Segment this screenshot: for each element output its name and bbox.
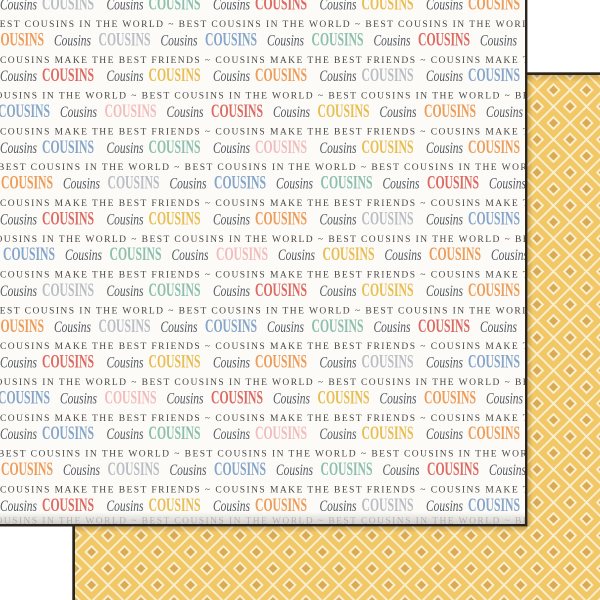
svg-text:Cousins: Cousins	[0, 0, 37, 14]
svg-text:Cousins: Cousins	[380, 104, 417, 121]
svg-text:Cousins: Cousins	[60, 104, 97, 121]
svg-text:COUSINS: COUSINS	[149, 208, 201, 229]
svg-text:BEST COUSINS IN THE WORLD ~ BE: BEST COUSINS IN THE WORLD ~ BEST COUSINS…	[0, 20, 574, 30]
svg-text:COUSINS: COUSINS	[0, 29, 44, 50]
svg-text:COUSINS: COUSINS	[99, 29, 151, 50]
svg-text:Cousins: Cousins	[480, 319, 517, 336]
svg-text:Cousins: Cousins	[107, 140, 144, 157]
svg-text:COUSINS: COUSINS	[255, 137, 307, 158]
svg-text:COUSINS MAKE THE BEST FRIENDS: COUSINS MAKE THE BEST FRIENDS ~ COUSINS …	[0, 414, 546, 424]
svg-text:Cousins: Cousins	[489, 462, 526, 479]
svg-text:COUSINS: COUSINS	[468, 352, 520, 373]
svg-text:COUSINS: COUSINS	[214, 459, 266, 480]
svg-text:Cousins: Cousins	[374, 32, 411, 49]
svg-text:BEST COUSINS IN THE WORLD ~ BE: BEST COUSINS IN THE WORLD ~ BEST COUSINS…	[0, 450, 580, 460]
svg-text:COUSINS: COUSINS	[149, 0, 201, 15]
svg-text:COUSINS MAKE THE BEST FRIENDS: COUSINS MAKE THE BEST FRIENDS ~ COUSINS …	[0, 342, 546, 352]
svg-text:COUSINS: COUSINS	[318, 101, 370, 122]
svg-text:Cousins: Cousins	[0, 355, 37, 372]
svg-text:COUSINS: COUSINS	[99, 316, 151, 337]
svg-text:Cousins: Cousins	[167, 390, 204, 407]
svg-text:Cousins: Cousins	[320, 426, 357, 443]
svg-text:COUSINS: COUSINS	[42, 352, 94, 373]
svg-text:BEST COUSINS IN THE WORLD ~ BE: BEST COUSINS IN THE WORLD ~ BEST COUSINS…	[0, 306, 574, 316]
svg-text:COUSINS: COUSINS	[362, 0, 414, 15]
svg-text:Cousins: Cousins	[426, 140, 463, 157]
svg-text:COUSINS: COUSINS	[149, 423, 201, 444]
svg-text:Cousins: Cousins	[213, 426, 250, 443]
svg-text:COUSINS: COUSINS	[211, 101, 263, 122]
svg-text:Cousins: Cousins	[426, 426, 463, 443]
svg-text:Cousins: Cousins	[380, 390, 417, 407]
svg-text:Cousins: Cousins	[491, 247, 528, 264]
svg-text:Cousins: Cousins	[278, 247, 315, 264]
svg-text:Cousins: Cousins	[426, 211, 463, 228]
svg-text:Cousins: Cousins	[213, 355, 250, 372]
svg-text:Cousins: Cousins	[426, 283, 463, 300]
svg-text:Cousins: Cousins	[426, 0, 463, 14]
svg-text:COUSINS: COUSINS	[211, 387, 263, 408]
svg-text:Cousins: Cousins	[0, 140, 37, 157]
svg-text:COUSINS: COUSINS	[42, 280, 94, 301]
svg-text:Cousins: Cousins	[63, 176, 100, 193]
svg-text:COUSINS: COUSINS	[42, 137, 94, 158]
svg-text:COUSINS: COUSINS	[1, 173, 53, 194]
svg-text:COUSINS: COUSINS	[318, 387, 370, 408]
svg-text:COUSINS: COUSINS	[205, 29, 257, 50]
svg-text:COUSINS: COUSINS	[42, 208, 94, 229]
svg-text:COUSINS: COUSINS	[1, 459, 53, 480]
svg-text:COUSINS: COUSINS	[149, 352, 201, 373]
svg-text:Cousins: Cousins	[60, 390, 97, 407]
svg-text:COUSINS: COUSINS	[321, 173, 373, 194]
svg-text:Cousins: Cousins	[63, 462, 100, 479]
svg-text:Cousins: Cousins	[213, 211, 250, 228]
svg-text:COUSINS: COUSINS	[149, 280, 201, 301]
svg-text:COUSINS: COUSINS	[214, 173, 266, 194]
svg-text:Cousins: Cousins	[107, 211, 144, 228]
svg-text:Cousins: Cousins	[320, 211, 357, 228]
svg-text:COUSINS: COUSINS	[418, 316, 470, 337]
svg-text:Cousins: Cousins	[320, 140, 357, 157]
svg-text:Cousins: Cousins	[383, 462, 420, 479]
svg-text:COUSINS: COUSINS	[362, 352, 414, 373]
svg-text:Cousins: Cousins	[385, 247, 422, 264]
svg-text:COUSINS: COUSINS	[255, 280, 307, 301]
svg-text:Cousins: Cousins	[426, 355, 463, 372]
svg-text:COUSINS: COUSINS	[323, 244, 375, 265]
svg-text:BEST COUSINS IN THE WORLD ~ BE: BEST COUSINS IN THE WORLD ~ BEST COUSINS…	[0, 163, 580, 173]
svg-text:COUSINS: COUSINS	[42, 423, 94, 444]
svg-text:Cousins: Cousins	[276, 462, 313, 479]
svg-text:Cousins: Cousins	[320, 355, 357, 372]
svg-text:Cousins: Cousins	[170, 462, 207, 479]
svg-text:Cousins: Cousins	[107, 355, 144, 372]
svg-text:COUSINS: COUSINS	[0, 101, 50, 122]
svg-text:COUSINS MAKE THE BEST FRIENDS: COUSINS MAKE THE BEST FRIENDS ~ COUSINS …	[0, 271, 546, 281]
svg-text:COUSINS: COUSINS	[149, 137, 201, 158]
svg-text:COUSINS MAKE THE BEST FRIENDS: COUSINS MAKE THE BEST FRIENDS ~ COUSINS …	[0, 56, 546, 66]
svg-text:Cousins: Cousins	[267, 319, 304, 336]
svg-text:Cousins: Cousins	[320, 283, 357, 300]
svg-text:COUSINS: COUSINS	[362, 423, 414, 444]
svg-text:BEST COUSINS IN THE WORLD ~ BE: BEST COUSINS IN THE WORLD ~ BEST COUSINS…	[0, 378, 537, 388]
svg-text:COUSINS MAKE THE BEST FRIENDS: COUSINS MAKE THE BEST FRIENDS ~ COUSINS …	[0, 127, 546, 137]
svg-text:Cousins: Cousins	[0, 68, 37, 85]
svg-text:Cousins: Cousins	[486, 104, 523, 121]
svg-text:Cousins: Cousins	[107, 426, 144, 443]
svg-text:COUSINS MAKE THE BEST FRIENDS: COUSINS MAKE THE BEST FRIENDS ~ COUSINS …	[0, 199, 546, 209]
svg-text:COUSINS: COUSINS	[216, 244, 268, 265]
svg-text:COUSINS: COUSINS	[418, 29, 470, 50]
svg-text:COUSINS: COUSINS	[468, 0, 520, 15]
svg-text:Cousins: Cousins	[172, 247, 209, 264]
svg-text:Cousins: Cousins	[0, 283, 37, 300]
svg-text:COUSINS: COUSINS	[255, 65, 307, 86]
svg-text:COUSINS: COUSINS	[468, 423, 520, 444]
svg-text:Cousins: Cousins	[170, 176, 207, 193]
svg-text:Cousins: Cousins	[213, 0, 250, 14]
svg-text:Cousins: Cousins	[273, 104, 310, 121]
svg-text:BEST COUSINS IN THE WORLD ~ BE: BEST COUSINS IN THE WORLD ~ BEST COUSINS…	[0, 235, 537, 245]
svg-text:COUSINS: COUSINS	[0, 387, 50, 408]
svg-text:Cousins: Cousins	[320, 0, 357, 14]
svg-text:COUSINS: COUSINS	[0, 316, 44, 337]
svg-text:COUSINS: COUSINS	[427, 173, 479, 194]
svg-text:COUSINS: COUSINS	[42, 65, 94, 86]
svg-text:COUSINS: COUSINS	[312, 316, 364, 337]
svg-text:COUSINS: COUSINS	[468, 280, 520, 301]
svg-text:Cousins: Cousins	[480, 32, 517, 49]
svg-text:Cousins: Cousins	[320, 68, 357, 85]
svg-text:Cousins: Cousins	[276, 176, 313, 193]
svg-text:COUSINS: COUSINS	[255, 352, 307, 373]
svg-text:Cousins: Cousins	[161, 319, 198, 336]
svg-text:Cousins: Cousins	[54, 319, 91, 336]
svg-text:COUSINS: COUSINS	[427, 459, 479, 480]
svg-text:COUSINS: COUSINS	[362, 65, 414, 86]
svg-text:COUSINS: COUSINS	[3, 244, 55, 265]
svg-text:Cousins: Cousins	[107, 68, 144, 85]
svg-text:COUSINS: COUSINS	[255, 423, 307, 444]
svg-text:Cousins: Cousins	[107, 283, 144, 300]
svg-text:COUSINS: COUSINS	[468, 137, 520, 158]
svg-text:Cousins: Cousins	[0, 211, 37, 228]
svg-text:Cousins: Cousins	[489, 176, 526, 193]
svg-text:COUSINS: COUSINS	[424, 101, 476, 122]
svg-text:BEST COUSINS IN THE WORLD ~ BE: BEST COUSINS IN THE WORLD ~ BEST COUSINS…	[0, 92, 537, 102]
svg-text:COUSINS: COUSINS	[105, 387, 157, 408]
svg-text:COUSINS: COUSINS	[362, 137, 414, 158]
svg-text:COUSINS MAKE THE BEST FRIENDS: COUSINS MAKE THE BEST FRIENDS ~ COUSINS …	[0, 485, 546, 495]
svg-text:Cousins: Cousins	[267, 32, 304, 49]
svg-text:Cousins: Cousins	[213, 140, 250, 157]
svg-text:Cousins: Cousins	[486, 390, 523, 407]
svg-text:COUSINS: COUSINS	[424, 387, 476, 408]
svg-text:Cousins: Cousins	[0, 426, 37, 443]
svg-text:COUSINS: COUSINS	[312, 29, 364, 50]
svg-text:COUSINS: COUSINS	[468, 65, 520, 86]
svg-text:COUSINS: COUSINS	[205, 316, 257, 337]
svg-text:Cousins: Cousins	[167, 104, 204, 121]
svg-text:Cousins: Cousins	[426, 68, 463, 85]
svg-text:COUSINS: COUSINS	[105, 101, 157, 122]
svg-text:COUSINS: COUSINS	[149, 65, 201, 86]
svg-text:COUSINS: COUSINS	[429, 244, 481, 265]
svg-text:Cousins: Cousins	[213, 68, 250, 85]
svg-text:COUSINS: COUSINS	[468, 208, 520, 229]
svg-text:Cousins: Cousins	[383, 176, 420, 193]
svg-text:Cousins: Cousins	[213, 283, 250, 300]
svg-text:Cousins: Cousins	[107, 0, 144, 14]
svg-text:COUSINS: COUSINS	[255, 208, 307, 229]
svg-text:COUSINS: COUSINS	[255, 0, 307, 15]
svg-text:Cousins: Cousins	[161, 32, 198, 49]
svg-text:COUSINS: COUSINS	[108, 173, 160, 194]
svg-text:COUSINS: COUSINS	[42, 0, 94, 15]
svg-text:COUSINS: COUSINS	[108, 459, 160, 480]
svg-text:Cousins: Cousins	[273, 390, 310, 407]
svg-text:Cousins: Cousins	[54, 32, 91, 49]
svg-text:COUSINS: COUSINS	[321, 459, 373, 480]
svg-text:Cousins: Cousins	[374, 319, 411, 336]
svg-text:COUSINS: COUSINS	[362, 280, 414, 301]
svg-text:Cousins: Cousins	[65, 247, 102, 264]
svg-text:COUSINS: COUSINS	[362, 208, 414, 229]
svg-text:COUSINS: COUSINS	[110, 244, 162, 265]
